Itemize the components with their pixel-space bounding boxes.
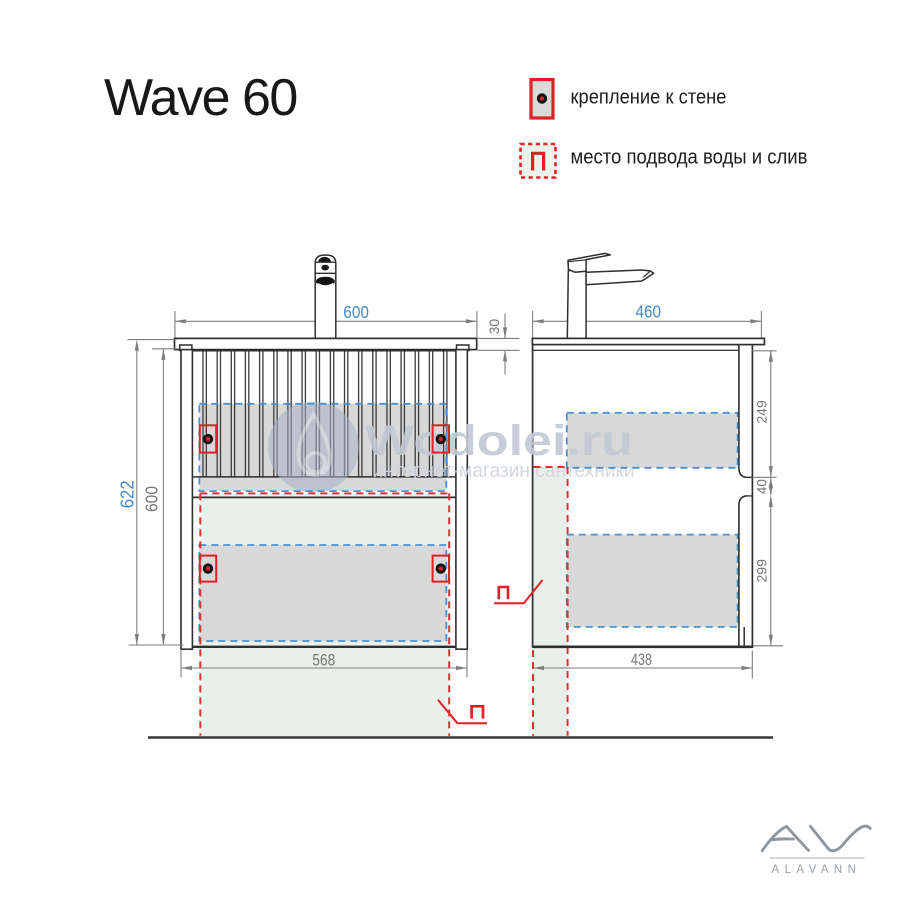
svg-text:крепление к стене: крепление к стене [571, 87, 727, 109]
svg-text:место подвода воды и слив: место подвода воды и слив [571, 147, 808, 169]
svg-text:600: 600 [343, 302, 369, 322]
svg-text:299: 299 [753, 559, 769, 583]
svg-text:Wave 60: Wave 60 [104, 69, 297, 127]
svg-text:600: 600 [142, 486, 162, 512]
svg-text:Wodolei.ru: Wodolei.ru [365, 417, 633, 465]
svg-text:30: 30 [487, 319, 502, 335]
svg-text:622: 622 [117, 480, 137, 508]
svg-text:40: 40 [753, 479, 769, 494]
svg-text:249: 249 [753, 400, 769, 424]
svg-text:ALAVANN: ALAVANN [772, 864, 862, 876]
svg-text:интернет-магазин сантехники: интернет-магазин сантехники [373, 460, 635, 482]
svg-text:568: 568 [312, 652, 335, 670]
svg-text:460: 460 [636, 302, 662, 322]
svg-text:438: 438 [631, 651, 652, 669]
